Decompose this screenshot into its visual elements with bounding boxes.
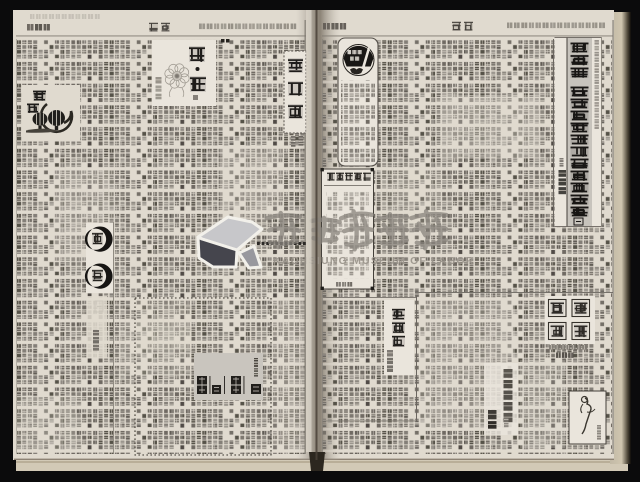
- svg-text:KAOHSIUNG MUSEUM OF LABOR: KAOHSIUNG MUSEUM OF LABOR: [273, 255, 475, 267]
